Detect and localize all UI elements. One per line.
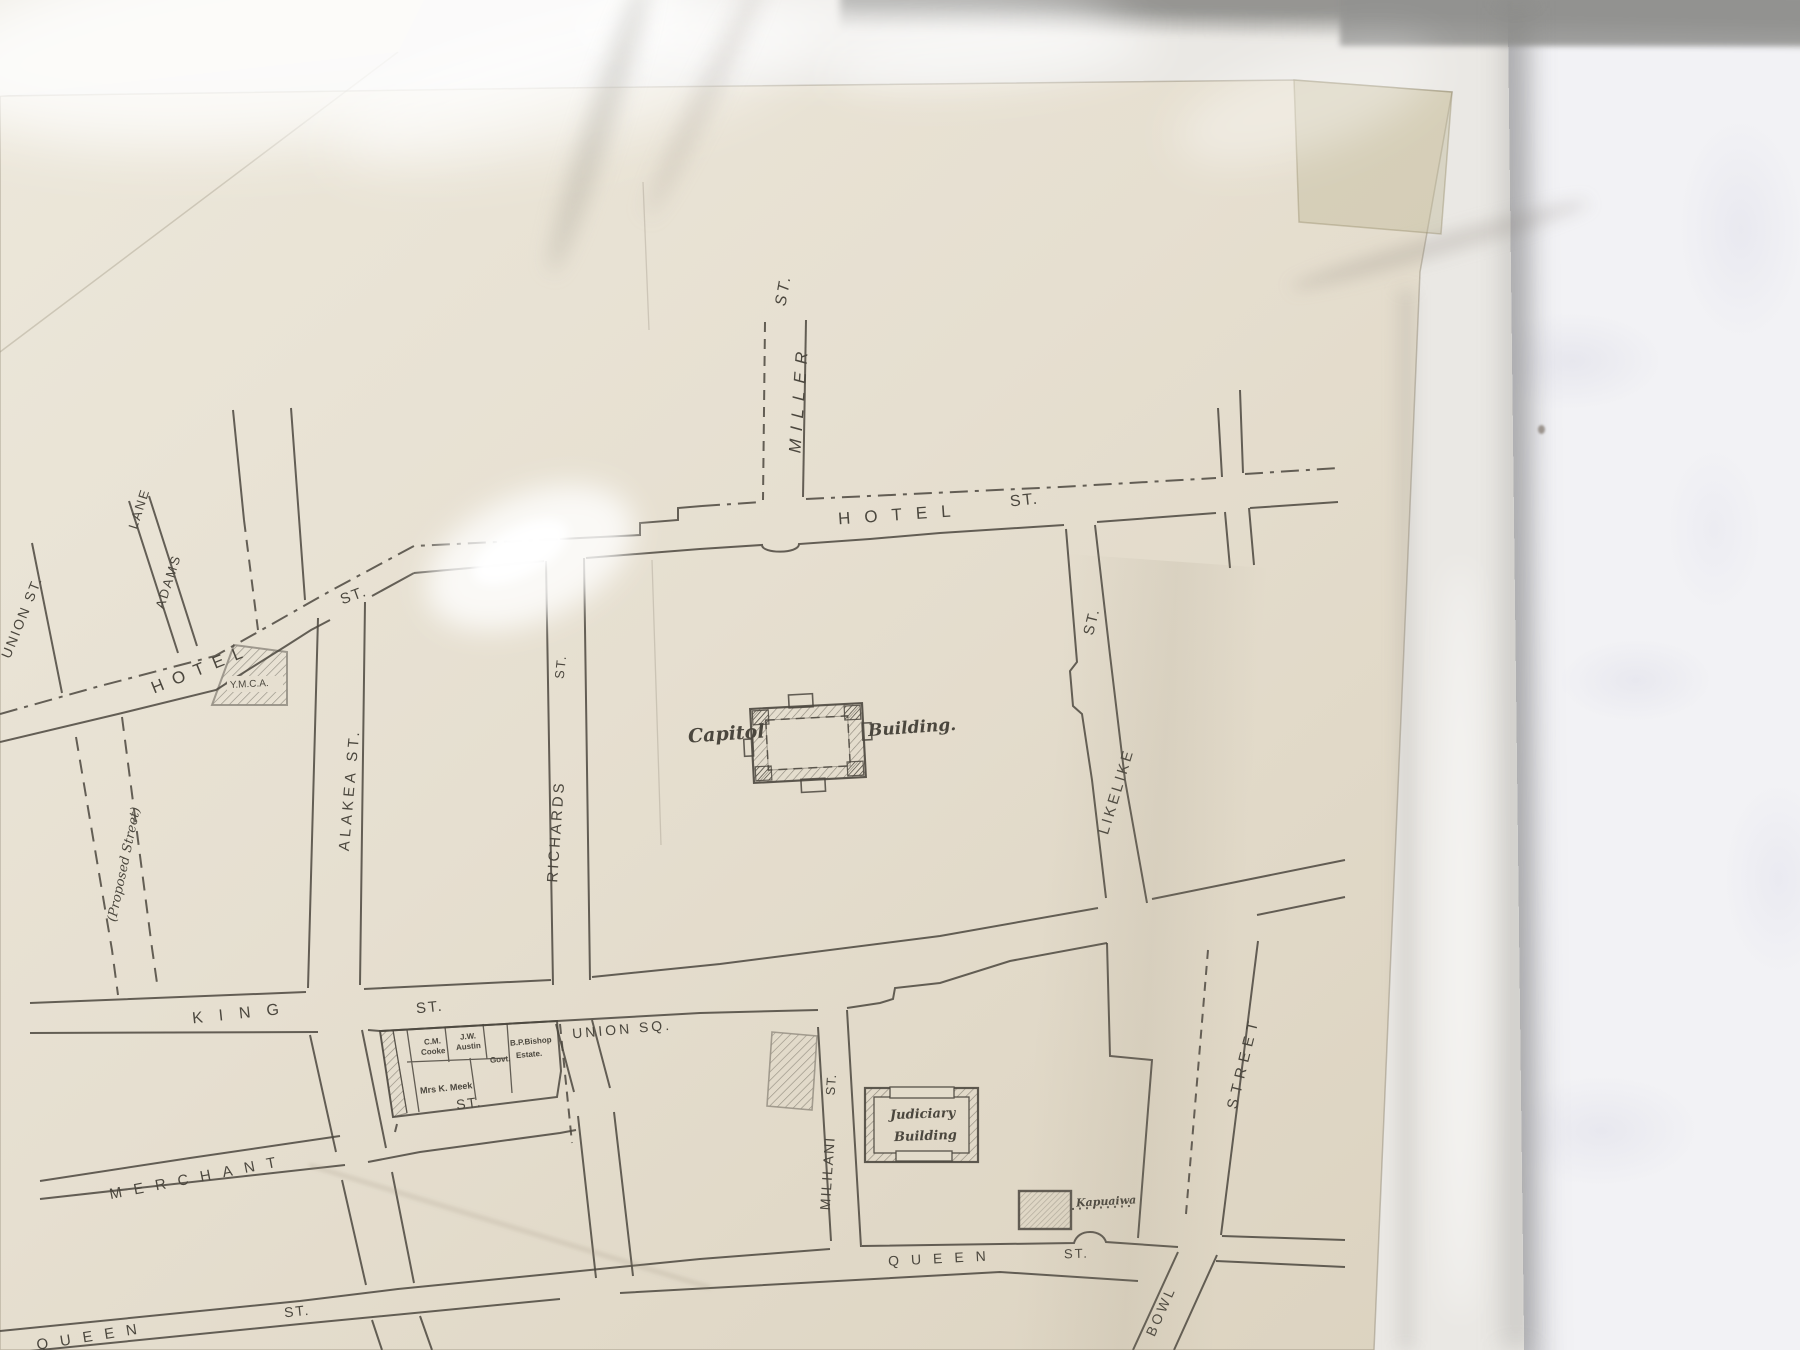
label-ymca: Y.M.C.A. (230, 679, 269, 691)
street-label-merchant-st: ST. (455, 1094, 483, 1112)
label-judiciary-building: Building (894, 1129, 957, 1144)
street-label-king-st: ST. (415, 999, 444, 1017)
map-sheet (0, 0, 1800, 1350)
street-label-hotel-st: ST. (1009, 492, 1040, 511)
street-label-mililani-st: ST. (824, 1073, 838, 1096)
union-sq-hatched-building (767, 1032, 817, 1110)
parcel-label-jw: J.W. (460, 1032, 477, 1041)
label-capitol: Capitol (687, 722, 765, 746)
parcel-label-cm: C.M. (424, 1037, 442, 1046)
map-paper (0, 0, 1452, 1350)
label-judiciary: Judiciary (890, 1107, 956, 1122)
street-label-queen-sw-st: ST. (283, 1303, 311, 1320)
tape-corner (1294, 80, 1452, 234)
photo-of-map: MILLER ST. HOTEL ST. HOTEL ST. ADAMS LAN… (0, 0, 1800, 1350)
street-label-richards-st: ST. (553, 653, 569, 679)
label-kapuaiwa: Kapuaiwa (1076, 1194, 1137, 1208)
street-label-queen-st: ST. (1064, 1247, 1089, 1261)
